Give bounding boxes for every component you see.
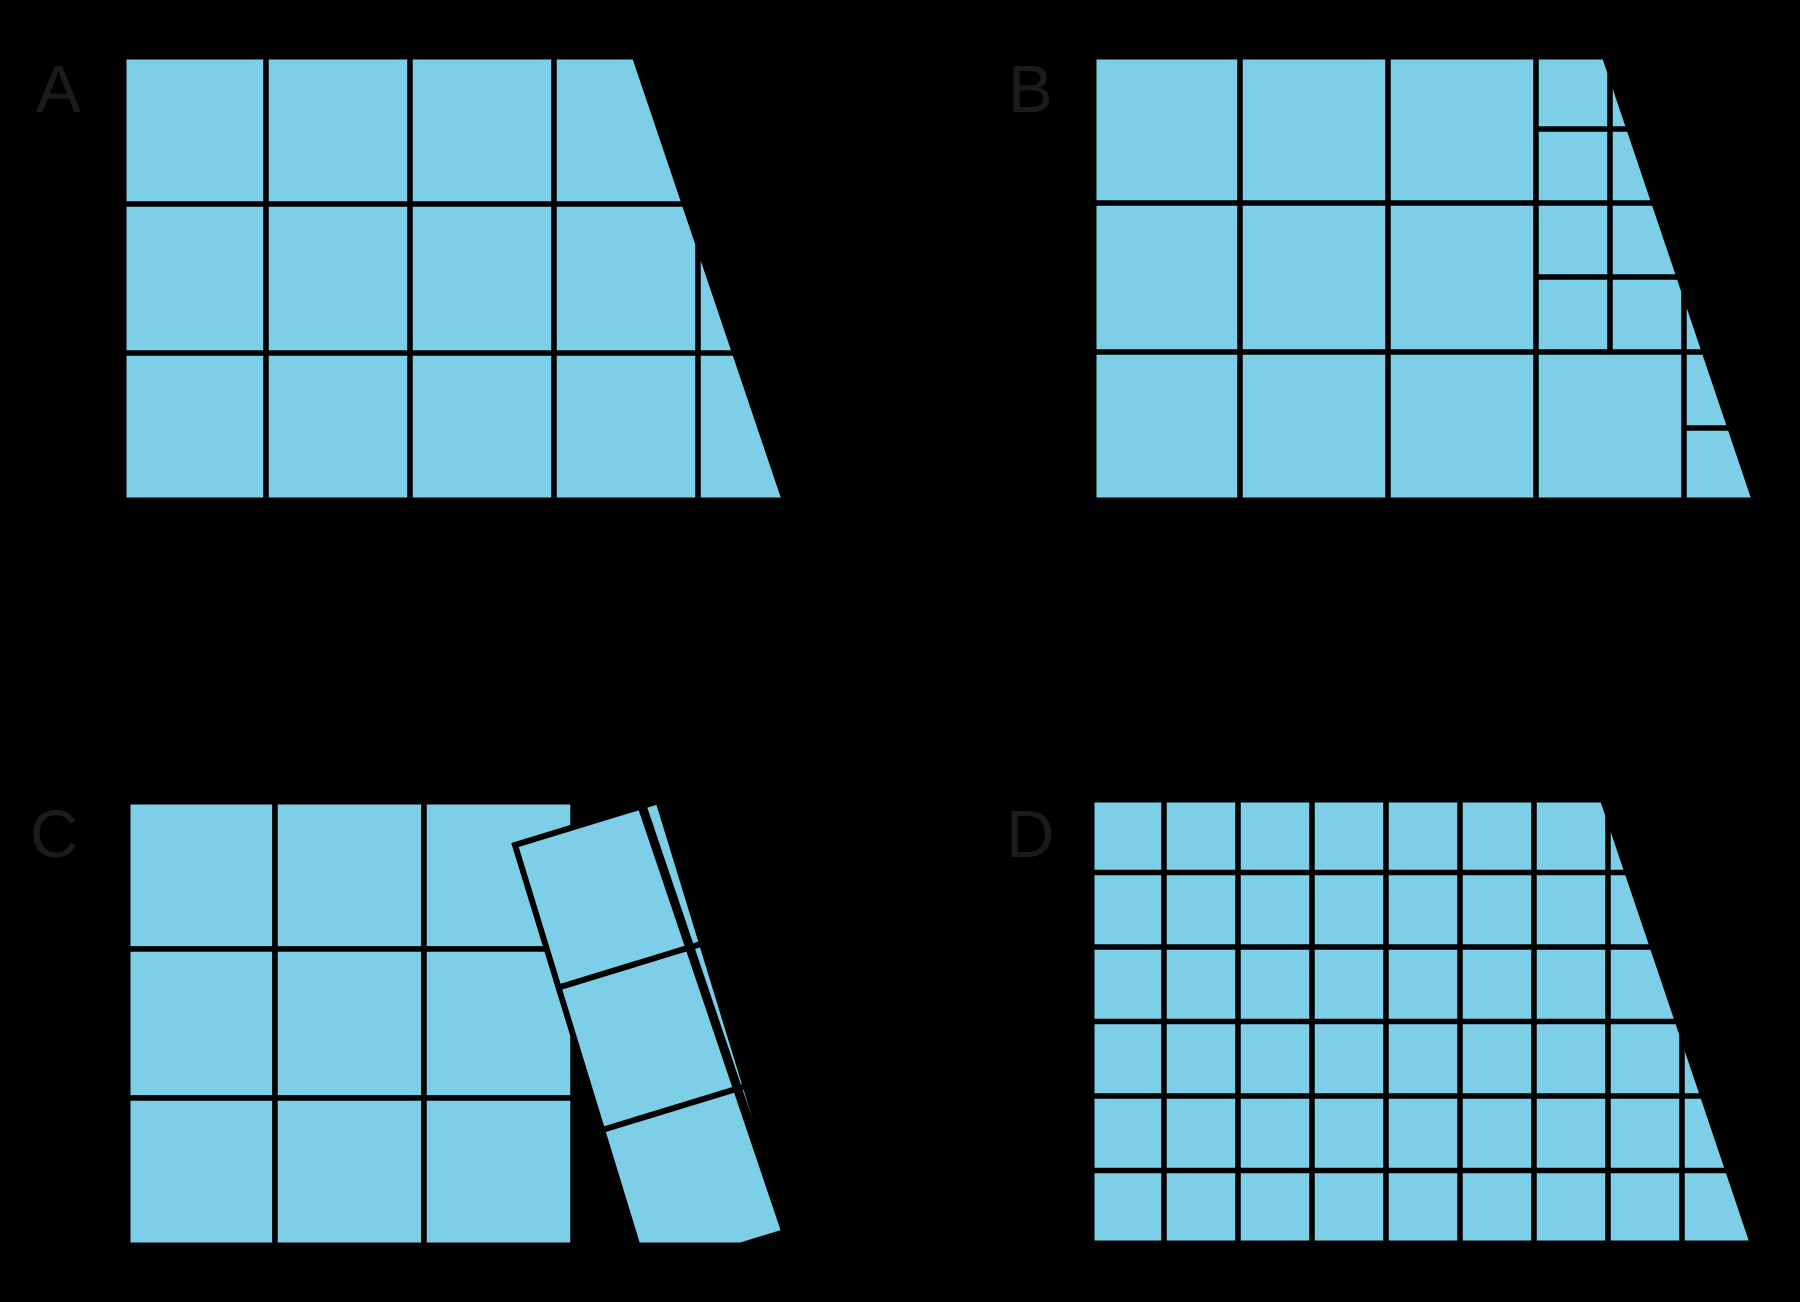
shape-label-c: C <box>30 797 78 872</box>
shape-d-group <box>1090 798 1755 1245</box>
figure-svg: ABCD <box>0 0 1800 1302</box>
square-tile <box>275 800 424 949</box>
trapezoid-fill <box>122 55 787 502</box>
square-tile <box>275 1098 424 1247</box>
shape-label-a: A <box>36 52 81 127</box>
shape-b-group <box>1092 55 1772 502</box>
square-tile <box>126 949 275 1098</box>
square-tiles <box>126 800 573 1247</box>
math-figure-trapezoid-tilings: ABCD <box>0 0 1800 1302</box>
square-tile <box>126 1098 275 1247</box>
shape-label-d: D <box>1006 797 1054 872</box>
square-tile <box>275 949 424 1098</box>
shape-c-group <box>126 800 791 1274</box>
square-tile <box>126 800 275 949</box>
square-tile <box>424 1098 573 1247</box>
shape-label-b: B <box>1008 52 1053 127</box>
shapes-root: ABCD <box>30 52 1772 1274</box>
shape-a-group <box>122 55 787 502</box>
